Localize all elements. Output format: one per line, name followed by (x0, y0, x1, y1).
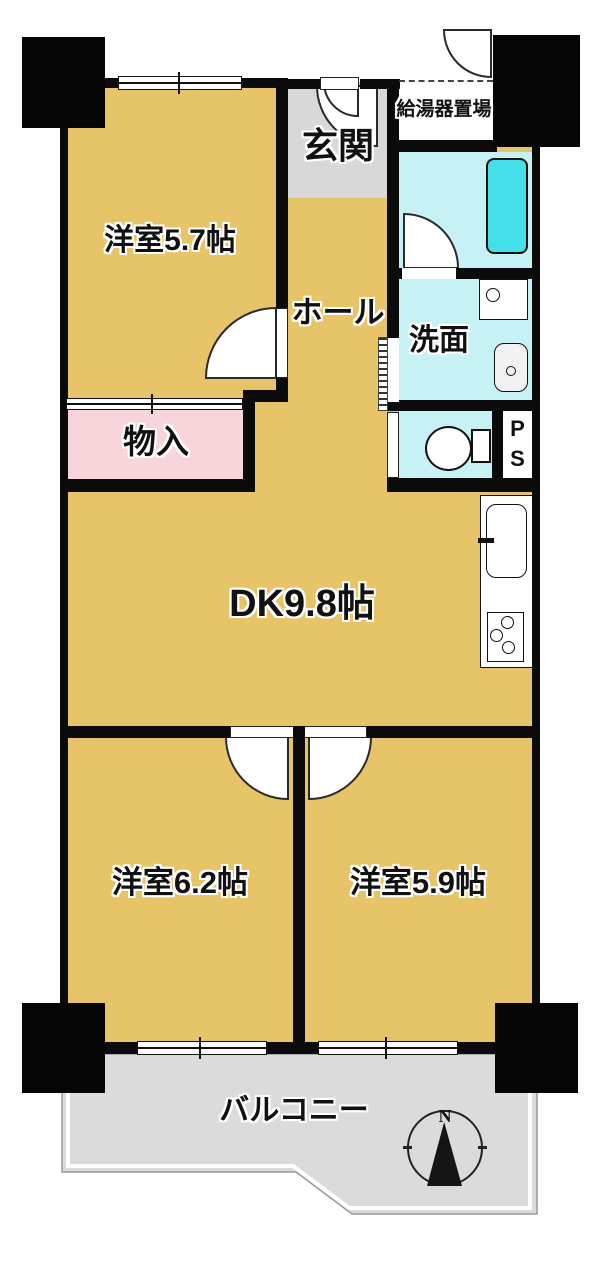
wall-toilet-ps (492, 411, 503, 478)
wall-right-outer (532, 147, 540, 1054)
wall-room57-hall-upper (276, 82, 288, 308)
water-heater-door-arc (444, 30, 491, 77)
hall-label: ホール (278, 296, 398, 330)
wall-washroom-toilet (387, 400, 536, 411)
storage-label: 物入 (70, 424, 242, 460)
compass-tick-east (478, 1146, 487, 1149)
entrance-label: 玄関 (290, 126, 386, 166)
pipe-space-p: P (503, 414, 532, 444)
wall-waterheater-bottom (387, 140, 497, 152)
wall-toilet-bottom (387, 478, 536, 492)
pillar-bottom-left (22, 1003, 105, 1093)
room62-door-arc (226, 737, 288, 799)
balcony-label: バルコニー (182, 1094, 406, 1127)
water-heater-open-boundary (399, 80, 493, 82)
pillar-top-left (22, 37, 105, 128)
washroom-accordion-door (378, 337, 388, 411)
storage-sliding-door (66, 398, 243, 410)
pillar-top-right (493, 35, 580, 147)
bathroom-door-arc (404, 214, 458, 268)
dk-label: DK9.8帖 (180, 584, 424, 626)
room57-label: 洋室5.7帖 (62, 224, 278, 257)
water-heater-label: 給湯器置場 (392, 100, 496, 121)
washroom-label: 洗面 (398, 324, 480, 357)
compass-tick-west (403, 1146, 412, 1149)
room62-label: 洋室6.2帖 (66, 866, 294, 900)
wall-top-entrance-a (288, 79, 320, 89)
pillar-bottom-right (495, 1003, 578, 1093)
wall-bath-left (387, 152, 399, 268)
bathroom-doorway (402, 268, 456, 279)
room57-window (118, 76, 242, 90)
wall-dk-bottom-a (60, 726, 230, 738)
pipe-space-label: P S (503, 414, 532, 474)
room59-window (318, 1041, 458, 1055)
wall-storage-bottom (60, 479, 255, 492)
toilet-door (387, 412, 399, 478)
wall-dk-bottom-b (367, 726, 540, 738)
entrance-doorway (320, 77, 359, 90)
floor-plan: 洋室5.7帖 ホール 玄関 給湯器置場 洗面 物入 DK9.8帖 洋室6.2帖 … (0, 0, 600, 1262)
room57-door-arc (206, 308, 276, 378)
room59-door-arc (309, 737, 371, 799)
room62-window (137, 1041, 267, 1055)
compass-north-label: N (417, 1106, 473, 1127)
room59-label: 洋室5.9帖 (304, 866, 532, 900)
pipe-space-s: S (503, 444, 532, 474)
